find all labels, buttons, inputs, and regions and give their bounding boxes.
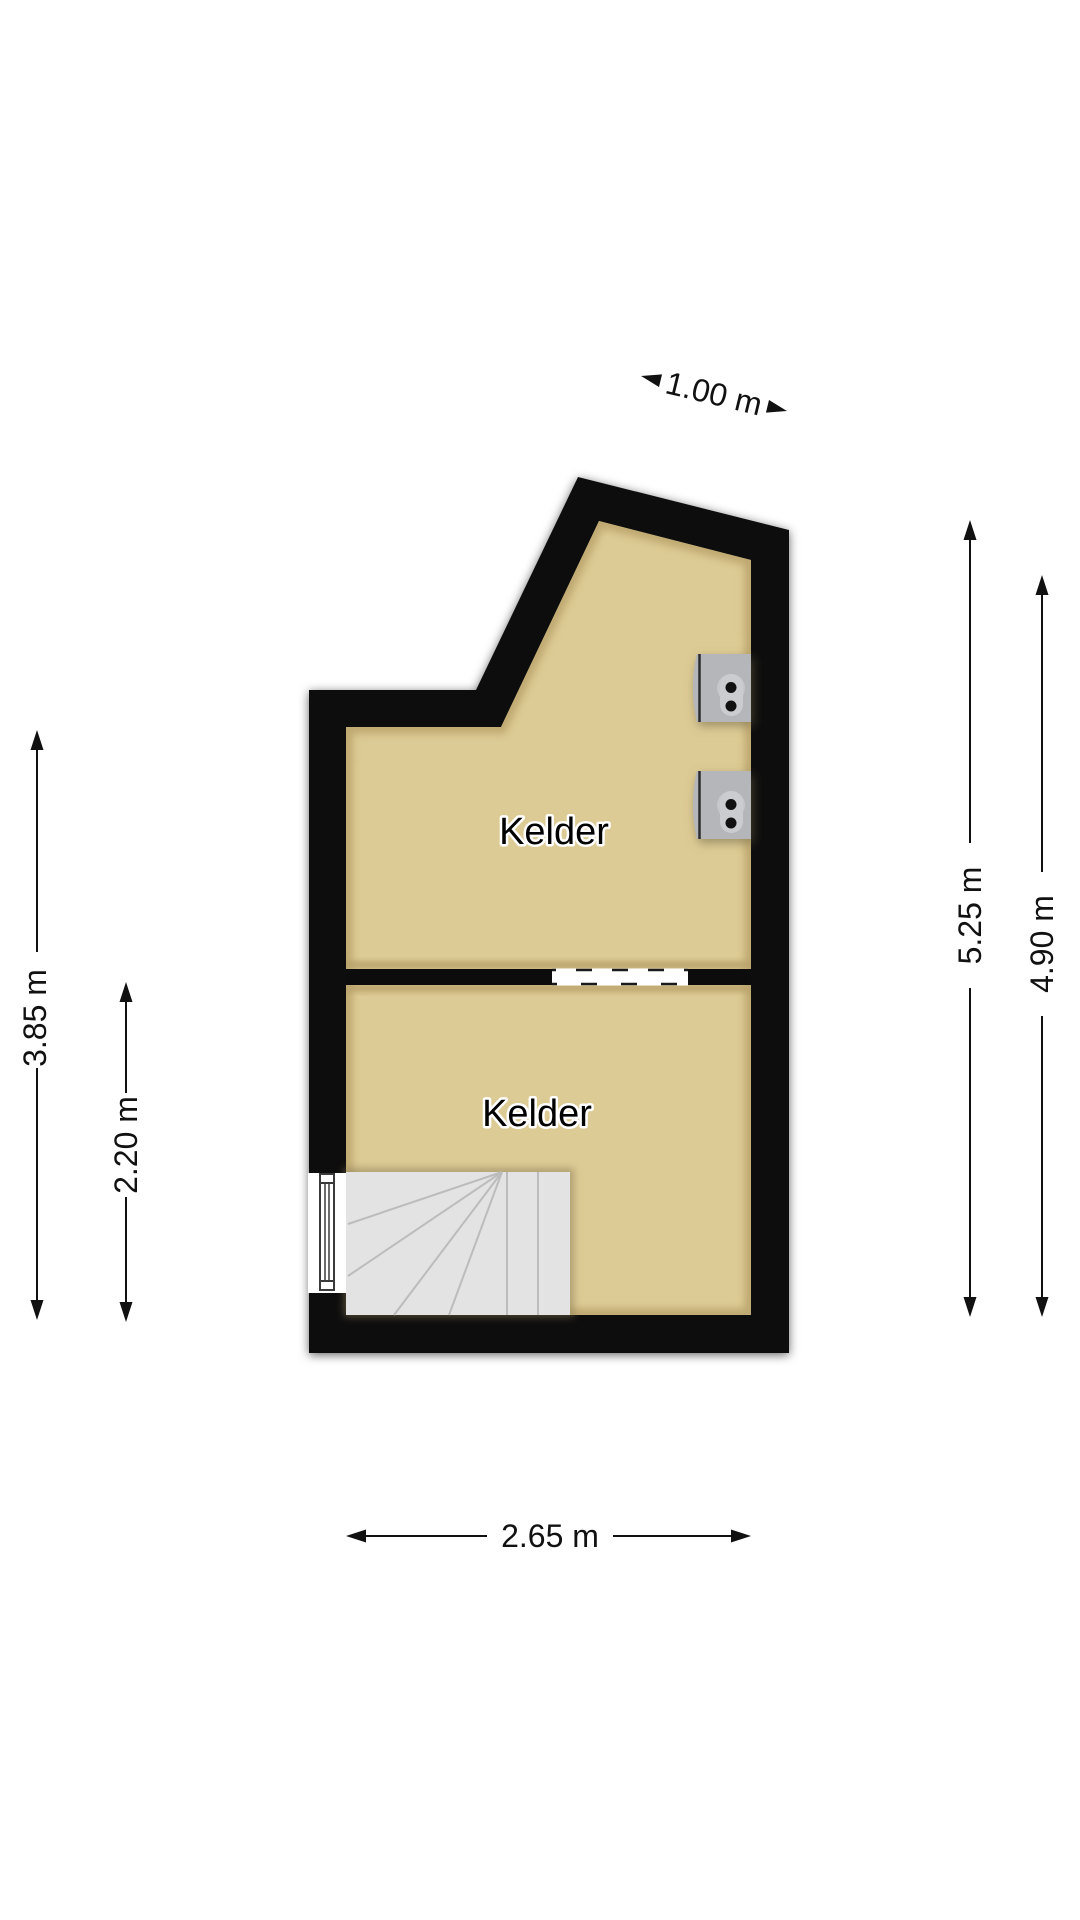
svg-text:Kelder: Kelder bbox=[499, 811, 609, 853]
svg-text:Kelder: Kelder bbox=[482, 1093, 592, 1135]
svg-text:3.85 m: 3.85 m bbox=[17, 969, 53, 1067]
svg-text:5.25 m: 5.25 m bbox=[952, 867, 988, 965]
svg-text:4.90 m: 4.90 m bbox=[1024, 895, 1060, 993]
svg-text:2.20 m: 2.20 m bbox=[108, 1096, 144, 1194]
svg-text:2.65 m: 2.65 m bbox=[501, 1518, 599, 1554]
